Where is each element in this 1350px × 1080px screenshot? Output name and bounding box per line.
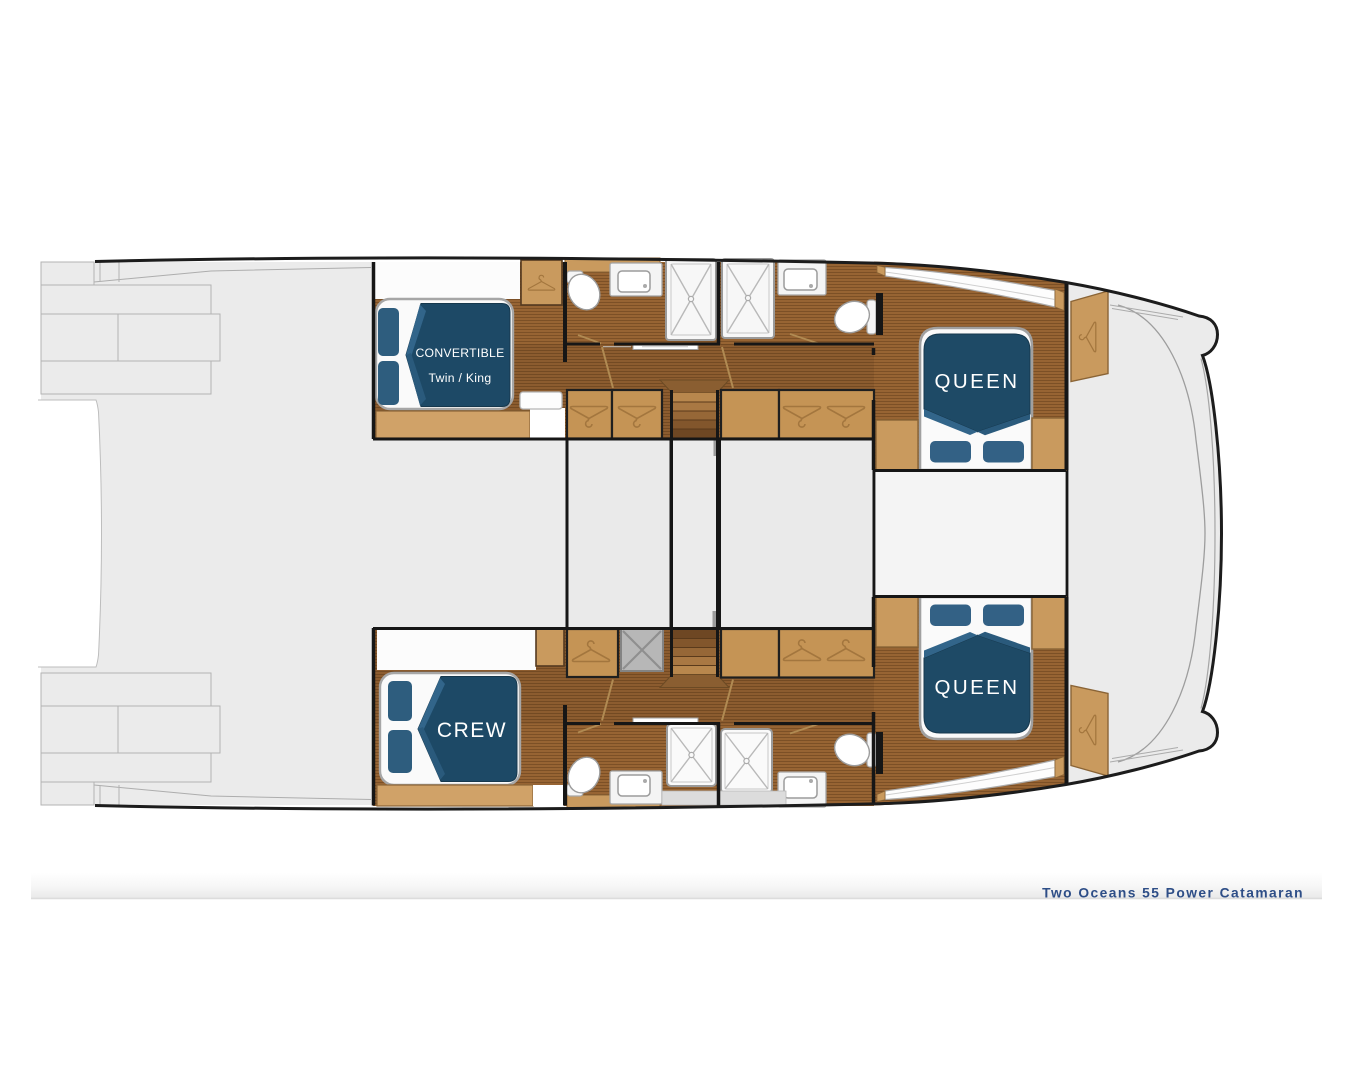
svg-text:QUEEN: QUEEN <box>935 676 1020 699</box>
svg-text:CREW: CREW <box>437 719 507 742</box>
svg-text:QUEEN: QUEEN <box>935 370 1020 393</box>
svg-text:Two Oceans 55 Power Catamaran: Two Oceans 55 Power Catamaran <box>1042 886 1304 901</box>
svg-text:CONVERTIBLE: CONVERTIBLE <box>415 346 504 360</box>
svg-text:Twin / King: Twin / King <box>429 371 492 385</box>
